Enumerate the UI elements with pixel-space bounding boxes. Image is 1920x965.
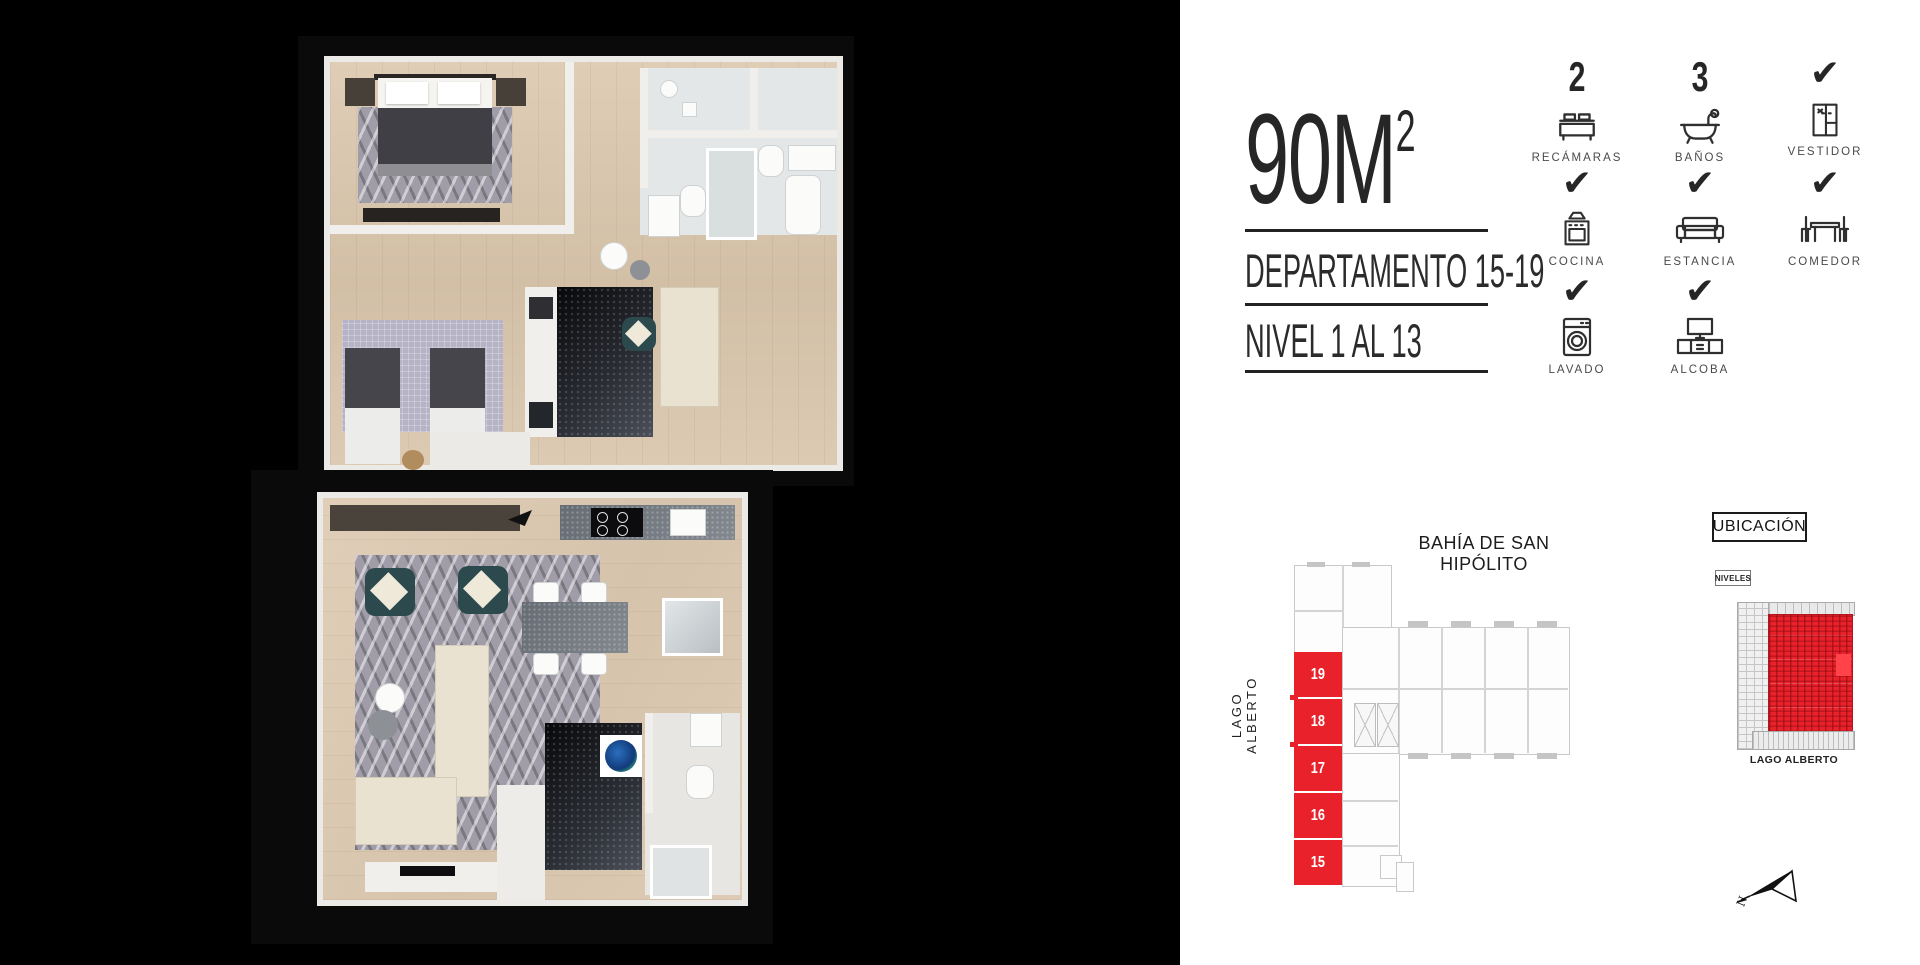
bathroom-wall [648,130,837,138]
burner [597,512,608,523]
feature-lavado: ✔ LAVADO [1512,274,1642,376]
nightstand [496,78,526,106]
unit-cell-18: 18 [1294,699,1342,744]
elevator-shaft [1354,703,1376,747]
check-icon: ✔ [1635,274,1765,310]
bathroom-wall [645,713,653,813]
vanity [788,145,836,171]
siteplan-line [1342,845,1398,847]
armchair [622,317,656,351]
unit-number: 15 [1311,854,1325,872]
balcony-tab [1451,621,1471,627]
staircase [557,287,653,437]
shower-drain [682,102,697,117]
toilet [686,765,714,799]
feature-estancia: ✔ ESTANCIA [1635,166,1765,268]
tv-console-icon [1635,316,1765,358]
nightstand [345,78,375,106]
bathroom-wall [750,68,758,130]
twin-bed-duvet [430,348,485,408]
balcony-tab [1537,753,1557,759]
dining-table-icon [1760,208,1890,250]
toilet [758,145,784,177]
vanity [690,713,722,747]
check-icon: ✔ [1635,166,1765,202]
shower-head [660,80,678,98]
department-title: DEPARTAMENTO 15-19 [1245,247,1544,294]
pillow [438,82,480,104]
area-value: 90M [1245,88,1396,231]
unit-divider [1441,627,1443,753]
siteplan-line [1342,800,1398,802]
vanity [648,195,680,237]
feature-label: COCINA [1512,256,1642,268]
feature-vestidor: ✔ VESTIDOR [1760,56,1890,158]
balcony-tab [1307,562,1325,567]
feature-count: 2 [1530,56,1624,98]
level-title: NIVEL 1 AL 13 [1245,317,1422,364]
feature-label: ALCOBA [1635,364,1765,376]
appliance [529,297,553,319]
unit-divider [1527,627,1529,753]
feature-alcoba: ✔ ALCOBA [1635,274,1765,376]
armchair [365,568,415,616]
north-letter: N [1736,893,1750,908]
feature-banos: 3 BAÑOS [1635,56,1765,164]
art-piece [605,740,637,772]
refrigerator [662,598,723,656]
north-arrow: N [1736,868,1800,908]
burner [597,525,608,536]
toilet [680,185,706,217]
feature-label: VESTIDOR [1760,146,1890,158]
feature-recamaras: 2 RECÁMARAS [1512,56,1642,164]
sofa [660,287,719,407]
armchair [458,566,508,614]
balcony-tab [1537,621,1557,627]
shower-stall [706,148,757,240]
elevation-left-facade [1737,602,1770,750]
dining-chair [533,653,559,675]
dining-chair [581,653,607,675]
hall-wall [565,62,574,234]
divider [1245,370,1488,373]
sofa [435,645,489,797]
niveles-badge: NIVELES [1715,570,1751,586]
elevation-highlight-unit [1836,654,1851,676]
unit-number: 16 [1311,807,1325,825]
check-icon: ✔ [1512,166,1642,202]
balcony-tab [1408,621,1428,627]
unit-cell-17: 17 [1294,746,1342,791]
bed-duvet [378,108,492,164]
area-title: 90M2 [1245,96,1416,224]
stove-icon [1512,208,1642,250]
unit-number: 18 [1311,713,1325,731]
balcony-tab [1451,753,1471,759]
bedside-table [402,450,424,470]
bathroom-wall [640,68,648,188]
coffee-table [375,683,405,713]
tv [400,866,455,876]
floorplan-render-2 [323,498,742,900]
unit-divider [1484,627,1486,753]
dining-table [522,602,628,653]
corridor-line [1342,688,1568,690]
unit-number: 19 [1311,666,1325,684]
divider [1245,229,1488,232]
balcony-tab [1494,753,1514,759]
unit-cell-15: 15 [1294,840,1342,885]
side-table [630,260,650,280]
siteplan-line [1294,610,1342,612]
feature-comedor: ✔ COMEDOR [1760,166,1890,268]
feature-label: LAVADO [1512,364,1642,376]
elevation-caption: LAGO ALBERTO [1748,754,1840,766]
unit-number: 17 [1311,760,1325,778]
burner [617,512,628,523]
loveseat [355,777,457,845]
elevator-shaft [1377,703,1399,747]
pillow [386,82,428,104]
feature-count: 3 [1653,56,1747,98]
unit-cell-16: 16 [1294,793,1342,838]
balcony-tab [1408,753,1428,759]
bed-foot-throw [378,164,492,176]
twin-bed-duvet [345,348,400,408]
street-label-left: LAGO ALBERTO [1229,658,1259,772]
kitchen-shelf [330,505,520,531]
bedroom-wall [330,225,570,234]
burner [617,525,628,536]
feature-label: COMEDOR [1760,256,1890,268]
siteplan-detail [1396,862,1414,892]
entry-floor [497,785,545,900]
twin-bed-sheets [345,408,400,464]
area-superscript: 2 [1396,103,1416,161]
check-icon: ✔ [1512,274,1642,310]
feature-cocina: ✔ COCINA [1512,166,1642,268]
kitchen-sink [670,509,706,536]
bed-icon [1512,104,1642,146]
street-label-top: BAHÍA DE SAN HIPÓLITO [1384,533,1584,575]
dining-chair [581,582,607,604]
bathtub [785,175,821,235]
elevation-base [1752,731,1855,750]
kitchen-counter [560,505,735,540]
washing-machine-icon [1512,316,1642,358]
media-console [363,208,500,222]
balcony-tab [1494,621,1514,627]
divider [1245,303,1488,306]
ubicacion-badge: UBICACIÓN [1712,512,1807,542]
feature-label: ESTANCIA [1635,256,1765,268]
check-icon: ✔ [1760,166,1890,202]
brochure-page: 90M2 DEPARTAMENTO 15-19 NIVEL 1 AL 13 2 … [0,0,1920,965]
wardrobe-icon [1760,98,1890,140]
side-table [368,710,398,740]
check-icon: ✔ [1760,56,1890,92]
unit-cell-19: 19 [1294,652,1342,697]
shower [650,845,712,899]
appliance [529,402,553,428]
floorplan-render-1 [330,62,837,465]
balcony-tab [1352,562,1370,567]
coffee-table [600,242,628,270]
sofa-icon [1635,208,1765,250]
bathtub-icon [1635,104,1765,146]
dining-chair [533,582,559,604]
entry-floor [430,432,530,465]
